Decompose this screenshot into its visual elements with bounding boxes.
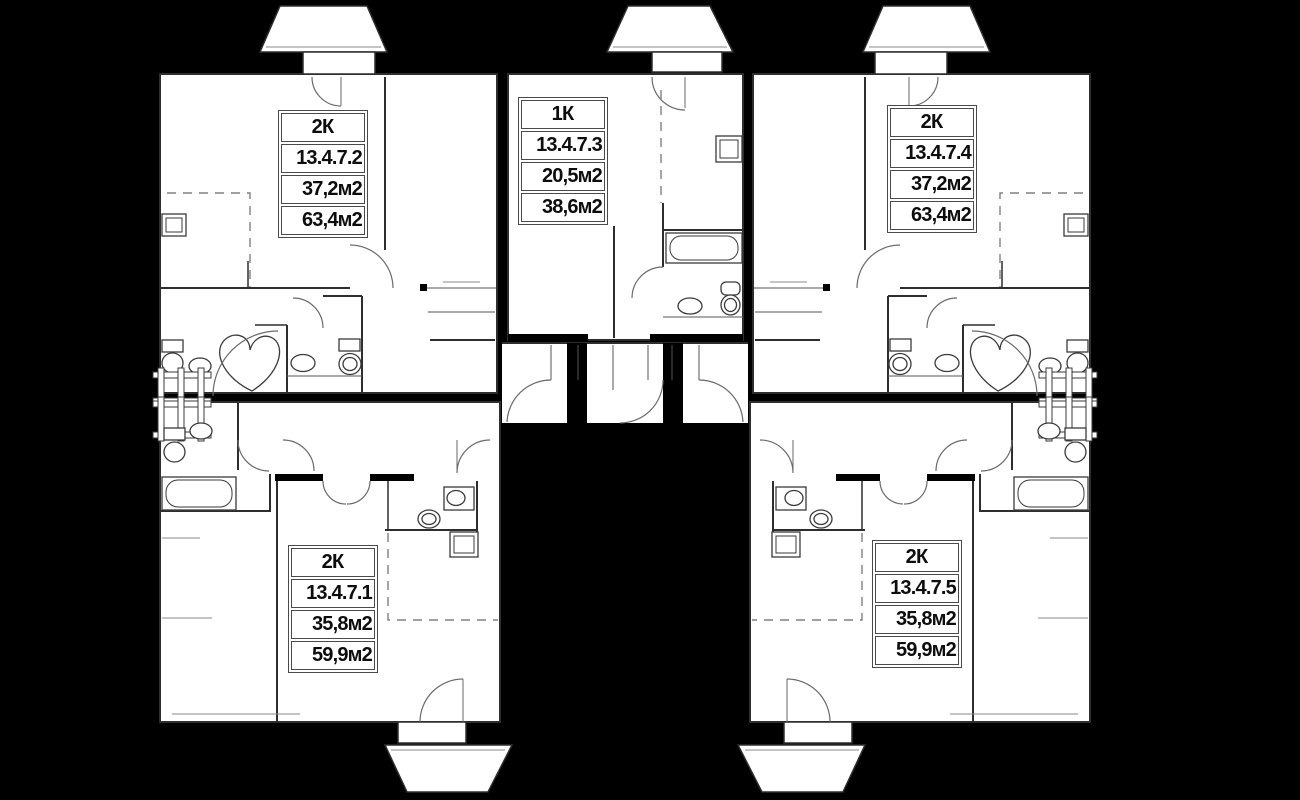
apartment-info-box-13471: 2К 13.4.7.1 35,8м2 59,9м2	[288, 545, 378, 673]
apartment-info-box-13474: 2К 13.4.7.4 37,2м2 63,4м2	[887, 105, 977, 233]
apartment-rooms-label: 2К	[281, 113, 365, 142]
apartment-number: 13.4.7.4	[890, 139, 974, 168]
apartment-number: 13.4.7.3	[521, 131, 605, 160]
apartment-rooms-label: 2К	[875, 543, 959, 572]
apartment-total-area: 59,9м2	[875, 636, 959, 665]
shaft-icon	[716, 136, 742, 162]
apartment-living-area: 37,2м2	[890, 170, 974, 199]
apartment-living-area: 35,8м2	[875, 605, 959, 634]
floor-plan-page: 2К 13.4.7.2 37,2м2 63,4м2 1К 13.4.7.3 20…	[0, 0, 1300, 800]
apartment-living-area: 35,8м2	[291, 610, 375, 639]
apartment-number: 13.4.7.5	[875, 574, 959, 603]
apartment-number: 13.4.7.1	[291, 579, 375, 608]
apartment-info-box-13473: 1К 13.4.7.3 20,5м2 38,6м2	[518, 97, 608, 225]
apartment-rooms-label: 2К	[291, 548, 375, 577]
apartment-rooms-label: 1К	[521, 100, 605, 129]
apartment-total-area: 63,4м2	[281, 206, 365, 235]
apartment-living-area: 37,2м2	[281, 175, 365, 204]
apartment-number: 13.4.7.2	[281, 144, 365, 173]
apartment-living-area: 20,5м2	[521, 162, 605, 191]
wall-thick	[508, 334, 588, 342]
apartment-total-area: 63,4м2	[890, 201, 974, 230]
apartment-info-box-13475: 2К 13.4.7.5 35,8м2 59,9м2	[872, 540, 962, 668]
apartment-rooms-label: 2К	[890, 108, 974, 137]
sink-icon	[678, 298, 702, 314]
apartment-total-area: 38,6м2	[521, 193, 605, 222]
apartment-info-box-13472: 2К 13.4.7.2 37,2м2 63,4м2	[278, 110, 368, 238]
bathtub-icon	[666, 233, 742, 263]
apartment-total-area: 59,9м2	[291, 641, 375, 670]
floor-plan-svg	[0, 0, 1300, 800]
wall-thick	[650, 334, 743, 342]
toilet-icon	[721, 282, 740, 315]
